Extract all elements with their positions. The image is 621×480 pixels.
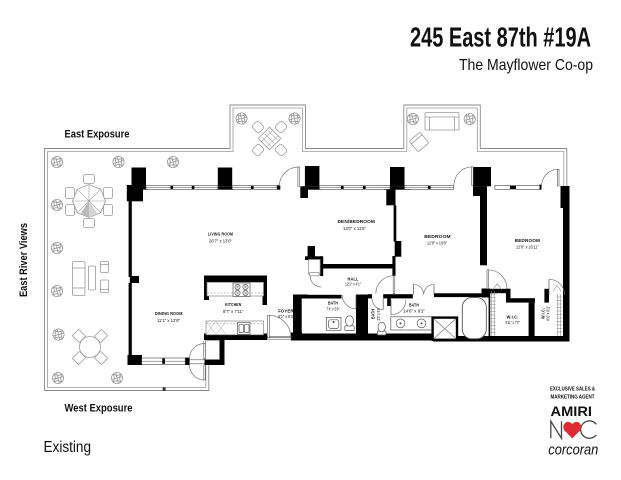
- svg-text:LIVING ROOM: LIVING ROOM: [208, 231, 233, 237]
- svg-text:2'0" x 5'9": 2'0" x 5'9": [376, 307, 381, 320]
- svg-text:East Exposure: East Exposure: [65, 129, 130, 141]
- svg-text:245 East 87th #19A: 245 East 87th #19A: [410, 21, 591, 52]
- svg-text:14'6" x 6'2": 14'6" x 6'2": [403, 308, 425, 313]
- svg-text:26'7" x 13'0": 26'7" x 13'0": [209, 238, 233, 243]
- svg-text:12'8" x 10'8": 12'8" x 10'8": [427, 241, 447, 246]
- svg-text:11'1" x 12'9": 11'1" x 12'9": [157, 318, 181, 323]
- svg-text:Existing: Existing: [44, 439, 92, 456]
- svg-text:The Mayflower Co-op: The Mayflower Co-op: [459, 57, 593, 74]
- svg-text:12'1" x 4'1": 12'1" x 4'1": [345, 282, 361, 287]
- svg-text:8'7" x 7'11": 8'7" x 7'11": [223, 309, 244, 314]
- svg-text:MARKETING AGENT: MARKETING AGENT: [551, 395, 595, 401]
- svg-text:East River Views: East River Views: [18, 223, 30, 297]
- svg-text:7'4" x 5'9": 7'4" x 5'9": [327, 307, 340, 312]
- svg-text:BEDROOM: BEDROOM: [424, 234, 451, 240]
- svg-text:6'1" x 9'3": 6'1" x 9'3": [278, 314, 294, 319]
- svg-text:12'8" x 16'11": 12'8" x 16'11": [516, 244, 539, 249]
- svg-text:DINING ROOM: DINING ROOM: [155, 311, 183, 317]
- svg-text:AMIRI: AMIRI: [551, 403, 593, 419]
- svg-text:BEDROOM: BEDROOM: [515, 238, 540, 244]
- svg-text:DEN/BEDROOM: DEN/BEDROOM: [338, 219, 376, 225]
- svg-text:4'10" x 8'11": 4'10" x 8'11": [545, 306, 550, 321]
- svg-text:West Exposure: West Exposure: [65, 403, 133, 415]
- svg-text:EXCLUSIVE SALES &: EXCLUSIVE SALES &: [550, 387, 595, 393]
- svg-text:corcoran: corcoran: [548, 443, 598, 459]
- svg-text:13'0" x 11'5": 13'0" x 11'5": [343, 226, 367, 231]
- svg-text:KITCHEN: KITCHEN: [225, 302, 242, 308]
- svg-text:5'11" x 7'0": 5'11" x 7'0": [506, 320, 520, 325]
